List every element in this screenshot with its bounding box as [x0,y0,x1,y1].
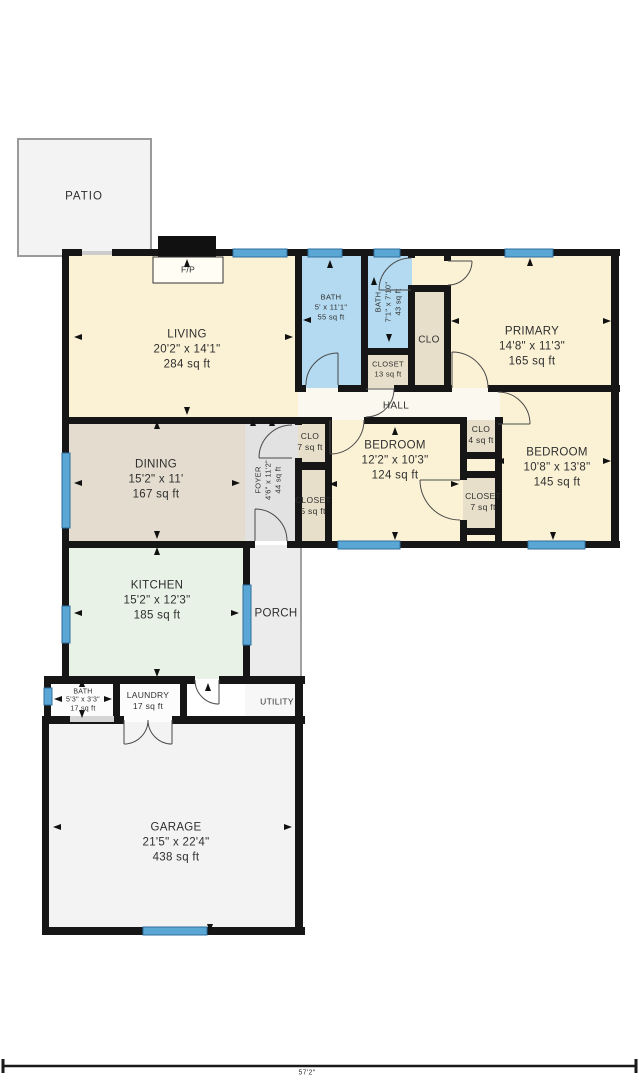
clo7-label: CLO7 sq ft [297,431,322,453]
fireplace-label: F/P [181,264,195,275]
foyer-label: FOYER4'6" x 11'2"44 sq ft [253,460,282,500]
scale-bar [2,1059,637,1073]
closet5-label: CLOSET5 sq ft [295,495,331,517]
closet13-label: CLOSET13 sq ft [372,359,404,379]
window [143,927,207,935]
floor-plan: PATIO LIVING20'2" x 14'1"284 sq ft F/P B… [0,0,639,1080]
closet7-label: CLOSET7 sq ft [465,491,501,513]
garage-label: GARAGE21'5" x 22'4"438 sq ft [143,821,210,866]
utility-label: UTILITY [260,696,294,707]
bedroom-mid-label: BEDROOM12'2" x 10'3"124 sq ft [362,439,429,484]
living-label: LIVING20'2" x 14'1"284 sq ft [154,328,221,373]
clo-primary-label: CLO [418,334,439,347]
patio-door [82,251,112,255]
window [308,249,342,257]
scale-bar-label: 57'2" [298,1068,315,1077]
window [62,606,70,643]
shower-bar [70,716,114,722]
porch-label: PORCH [254,607,297,622]
clo4-label: CLO4 sq ft [468,424,493,446]
window [338,541,400,549]
window [374,249,400,257]
window [62,453,70,528]
dining-label: DINING15'2" x 11'167 sq ft [128,458,183,503]
primary-label: PRIMARY14'8" x 11'3"165 sq ft [499,325,565,370]
bedroom-right-label: BEDROOM10'8" x 13'8"145 sq ft [524,446,591,491]
bath-mid-label: BATH7'1" x 7'10"43 sq ft [373,282,402,323]
bath-garage-label: BATH5'3" x 3'3"17 sq ft [66,688,100,713]
window [528,541,585,549]
bath-top-label: BATH5' x 11'1"55 sq ft [315,292,348,321]
kitchen-label: KITCHEN15'2" x 12'3"185 sq ft [124,579,191,624]
fireplace-icon [153,236,223,283]
window [505,249,553,257]
laundry-label: LAUNDRY17 sq ft [127,690,170,712]
room-fills [18,139,616,934]
floor-plan-drawing [0,0,639,1080]
window [233,249,287,257]
hall-label: HALL [383,400,409,413]
window [44,688,52,705]
arrow-icon [205,683,211,691]
patio-label: PATIO [65,190,103,205]
window [243,585,251,645]
